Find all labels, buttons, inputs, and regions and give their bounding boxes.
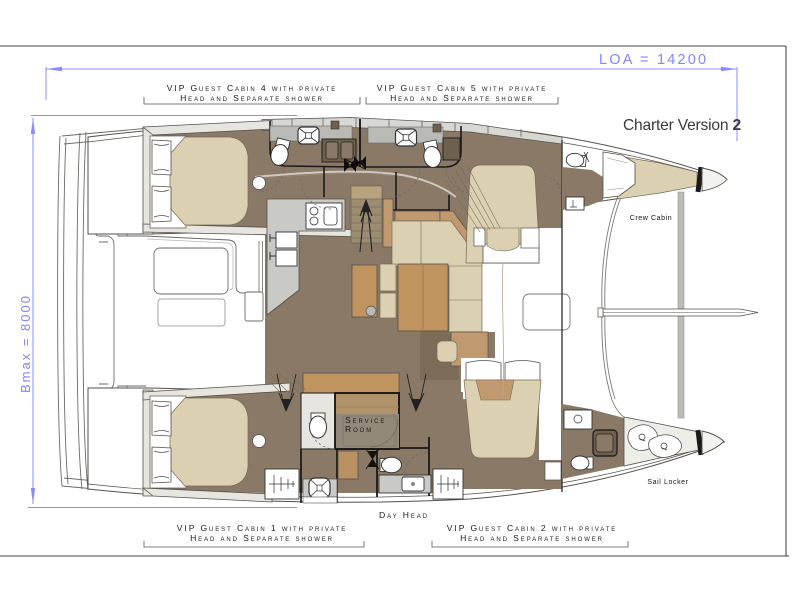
svg-text:VIP Guest Cabin 1 with private: VIP Guest Cabin 1 with private — [177, 523, 347, 533]
svg-text:Head and Separate shower: Head and Separate shower — [460, 533, 604, 543]
svg-text:Day Head: Day Head — [379, 510, 429, 520]
svg-text:Head and Separate shower: Head and Separate shower — [190, 533, 334, 543]
svg-text:Head and Separate shower: Head and Separate shower — [180, 93, 324, 103]
svg-text:VIP Guest Cabin 5 with private: VIP Guest Cabin 5 with private — [377, 83, 547, 93]
svg-text:Sail Locker: Sail Locker — [647, 479, 688, 486]
svg-text:Room: Room — [345, 424, 373, 434]
svg-text:Bmax = 8000: Bmax = 8000 — [18, 294, 33, 393]
svg-text:VIP Guest Cabin 4 with private: VIP Guest Cabin 4 with private — [167, 83, 337, 93]
svg-text:Crew Cabin: Crew Cabin — [630, 215, 673, 222]
svg-text:Head and Separate shower: Head and Separate shower — [390, 93, 534, 103]
svg-text:VIP Guest Cabin 2 with private: VIP Guest Cabin 2 with private — [447, 523, 617, 533]
svg-text:LOA = 14200: LOA = 14200 — [599, 52, 708, 68]
svg-text:Charter Version 2: Charter Version 2 — [623, 117, 741, 134]
